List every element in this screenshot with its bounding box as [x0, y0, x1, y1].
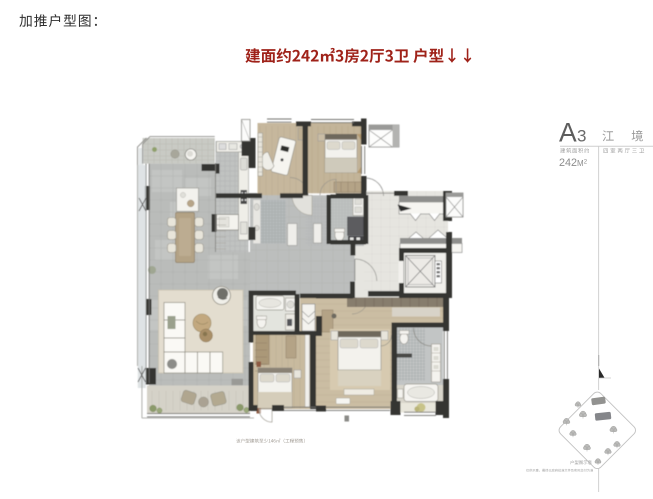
svg-text:A: A — [559, 118, 577, 148]
svg-text:3: 3 — [577, 127, 586, 146]
svg-text:242M2: 242M2 — [559, 157, 588, 169]
